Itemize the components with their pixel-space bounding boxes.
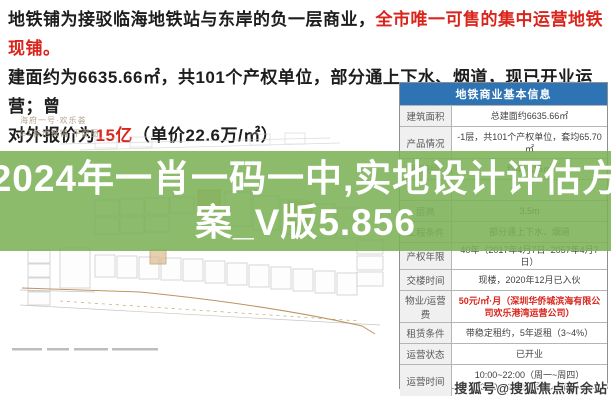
- table-row: 建筑面积 总建面约6635.66㎡: [400, 105, 607, 126]
- headline-line1-black: 地铁铺为接驳临海地铁站与东岸的负一层商业，: [8, 10, 376, 29]
- table-row: 物业/运营费 50元/㎡·月（深圳华侨城滨海有限公司欢乐港湾运营公司）: [400, 290, 607, 322]
- green-banner-overlay: 2024年一肖一码一中,实地设计评估方 案_V版5.856: [0, 151, 611, 251]
- table-row: 交楼时间 现楼，2020年12月已入伙: [400, 269, 607, 290]
- floor-plan-title-line1: 海府一号·欢乐荟: [20, 114, 99, 127]
- sohu-watermark: 搜狐号@搜狐焦点新余站: [454, 378, 608, 397]
- banner-text-line2: 案_V版5.856: [195, 201, 416, 245]
- plan-legend-marks: [12, 348, 158, 351]
- table-title: 地铁商业基本信息: [400, 83, 607, 105]
- headline-line-1: 地铁铺为接驳临海地铁站与东岸的负一层商业，全市唯一可售的集中运营地铁现铺。: [8, 5, 608, 63]
- table-row: 租赁条件 带稳定租约，5年返租（3~4%）: [400, 322, 607, 343]
- banner-text-line1: 2024年一肖一码一中,实地设计评估方: [0, 157, 611, 201]
- table-row: 运营状态 已开业: [400, 343, 607, 364]
